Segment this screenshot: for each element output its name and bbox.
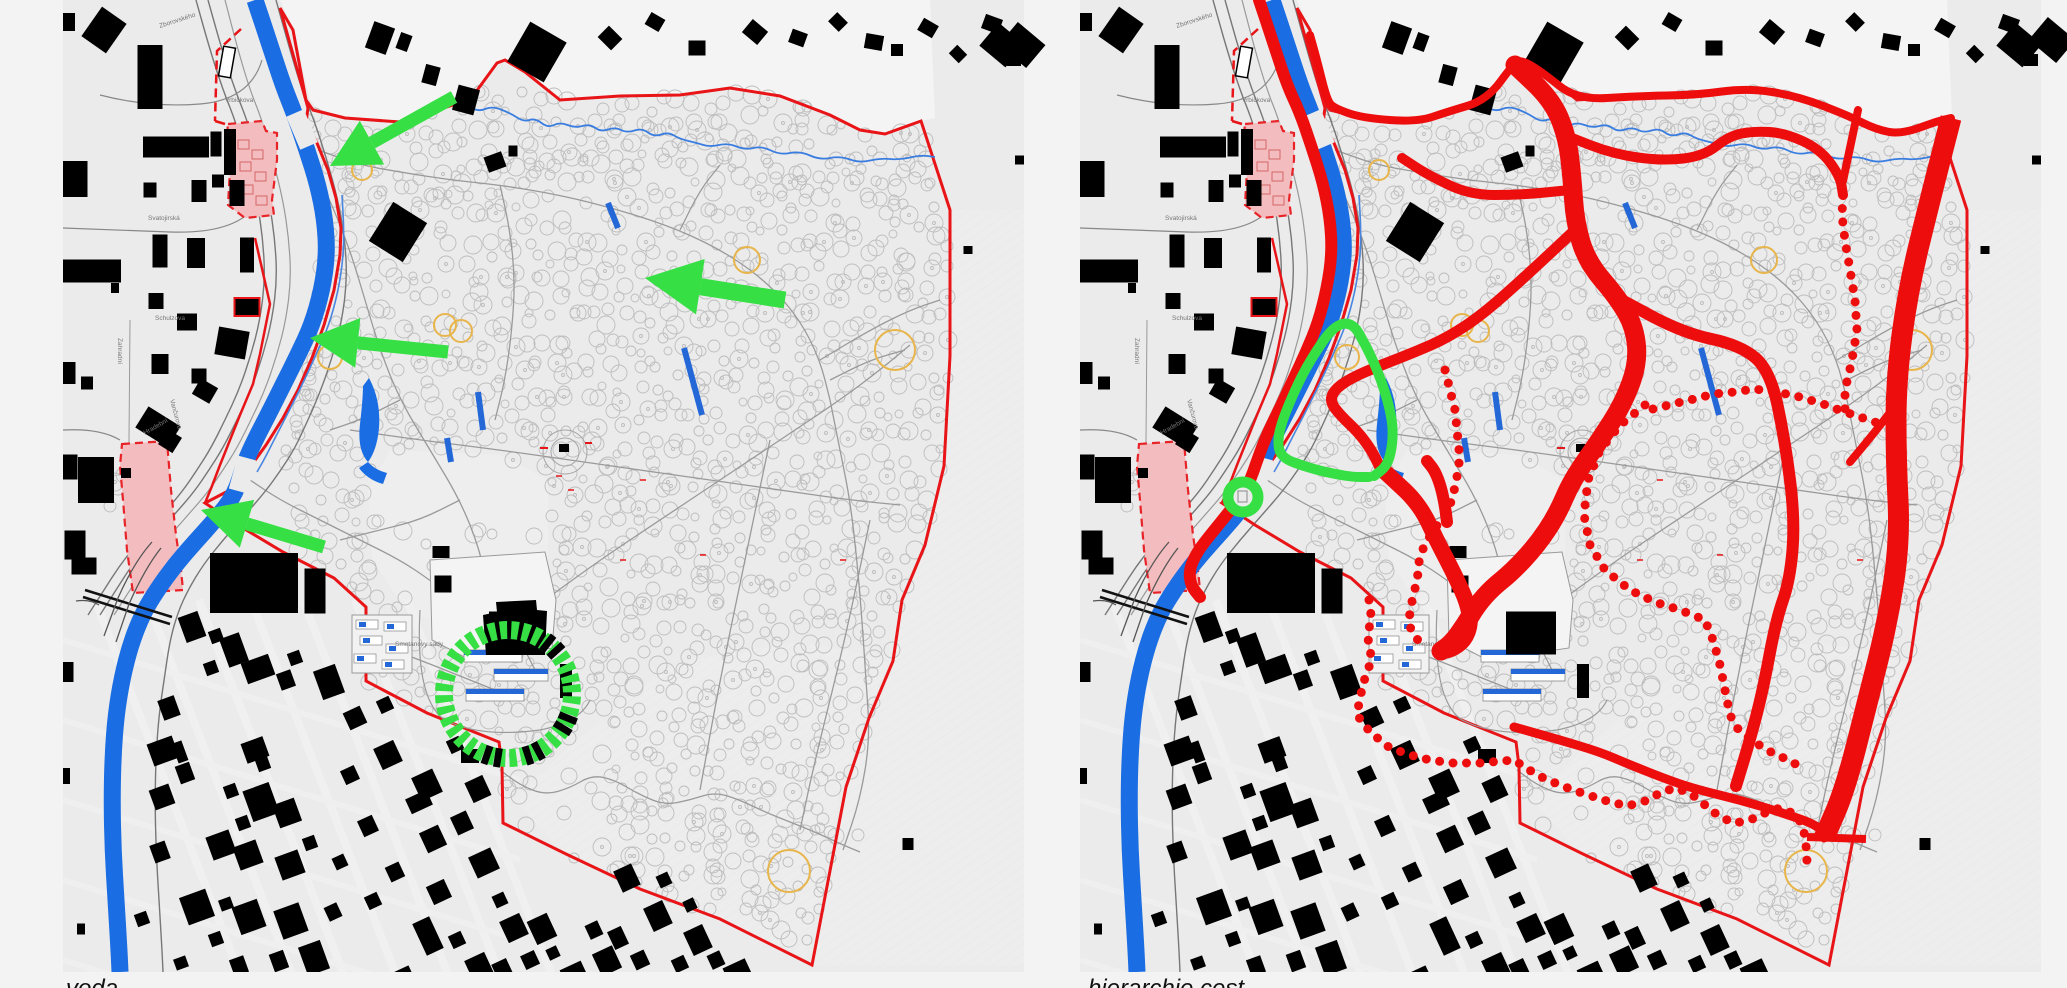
svg-text:voda: voda [66, 975, 118, 988]
svg-text:hierarchie cest: hierarchie cest [1088, 975, 1245, 988]
